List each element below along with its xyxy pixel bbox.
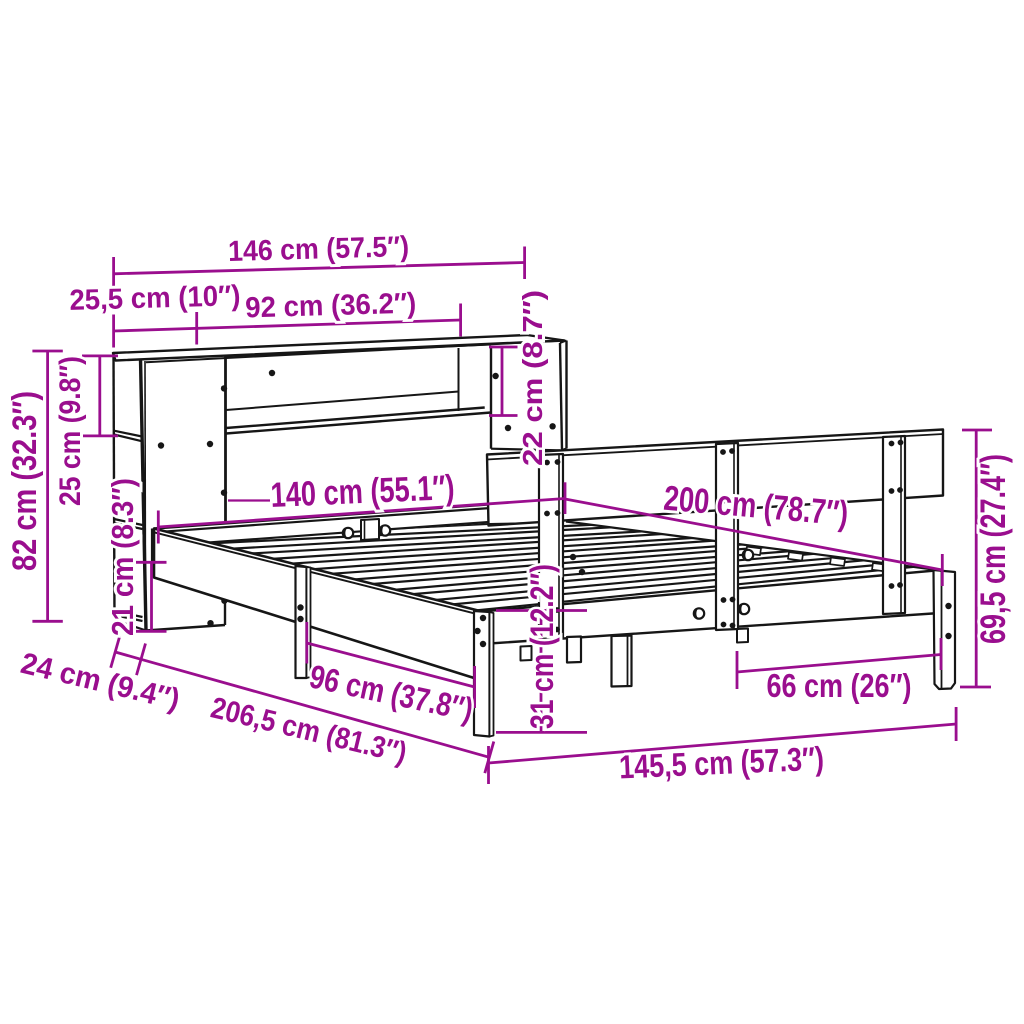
svg-text:21 cm (8.3″): 21 cm (8.3″) (105, 478, 140, 636)
svg-text:25,5 cm (10″): 25,5 cm (10″) (69, 280, 241, 317)
svg-text:31 cm (12.2″): 31 cm (12.2″) (524, 564, 560, 729)
svg-text:22 cm (8.7″): 22 cm (8.7″) (517, 290, 548, 466)
svg-text:82 cm (32.3″): 82 cm (32.3″) (6, 391, 44, 571)
svg-text:69,5 cm (27.4″): 69,5 cm (27.4″) (974, 454, 1013, 644)
svg-text:92 cm (36.2″): 92 cm (36.2″) (245, 288, 417, 325)
svg-text:146 cm (57.5″): 146 cm (57.5″) (228, 231, 410, 268)
svg-text:25 cm (9.8″): 25 cm (9.8″) (54, 356, 87, 506)
svg-text:66 cm (26″): 66 cm (26″) (767, 667, 912, 704)
svg-text:140 cm (55.1″): 140 cm (55.1″) (270, 468, 456, 515)
